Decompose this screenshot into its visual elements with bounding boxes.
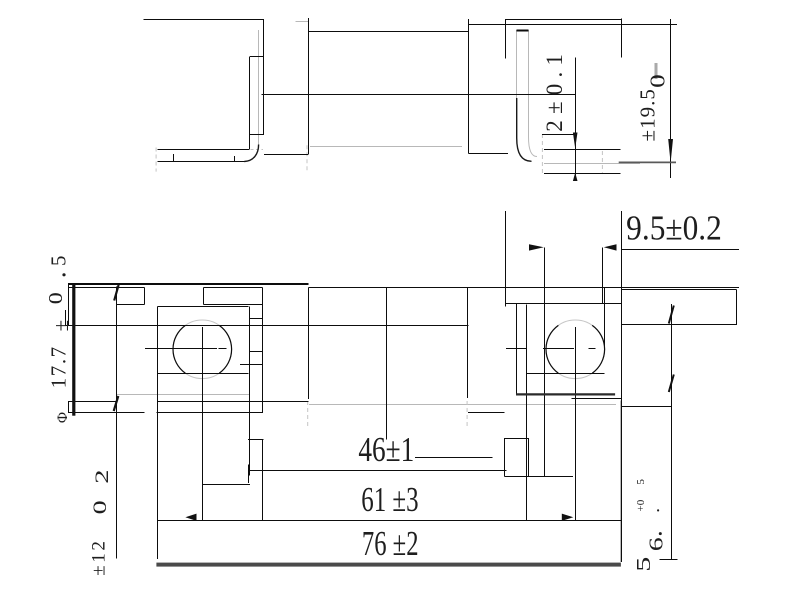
svg-text:46±1: 46±1 [358, 430, 414, 469]
svg-text:17.7: 17.7 [47, 345, 71, 388]
svg-text:0: 0 [44, 292, 67, 304]
svg-text:5: 5 [635, 479, 647, 485]
svg-text:±19.5: ±19.5 [636, 88, 660, 141]
svg-text:76 ±2: 76 ±2 [362, 524, 419, 563]
svg-text:±: ± [49, 320, 73, 332]
svg-text:Φ: Φ [55, 412, 71, 423]
svg-text:9.5±0.2: 9.5±0.2 [626, 210, 722, 248]
svg-text:+0: +0 [635, 499, 647, 511]
svg-text:0: 0 [646, 74, 669, 88]
svg-text:±12: ±12 [89, 539, 110, 576]
svg-text:0: 0 [90, 500, 111, 514]
svg-text:5: 5 [632, 557, 655, 572]
svg-text:2±0.1: 2±0.1 [542, 48, 567, 132]
svg-text:6: 6 [645, 537, 667, 551]
svg-text:2: 2 [92, 469, 113, 483]
svg-text:61 ±3: 61 ±3 [361, 480, 418, 519]
svg-text:5: 5 [46, 256, 70, 267]
